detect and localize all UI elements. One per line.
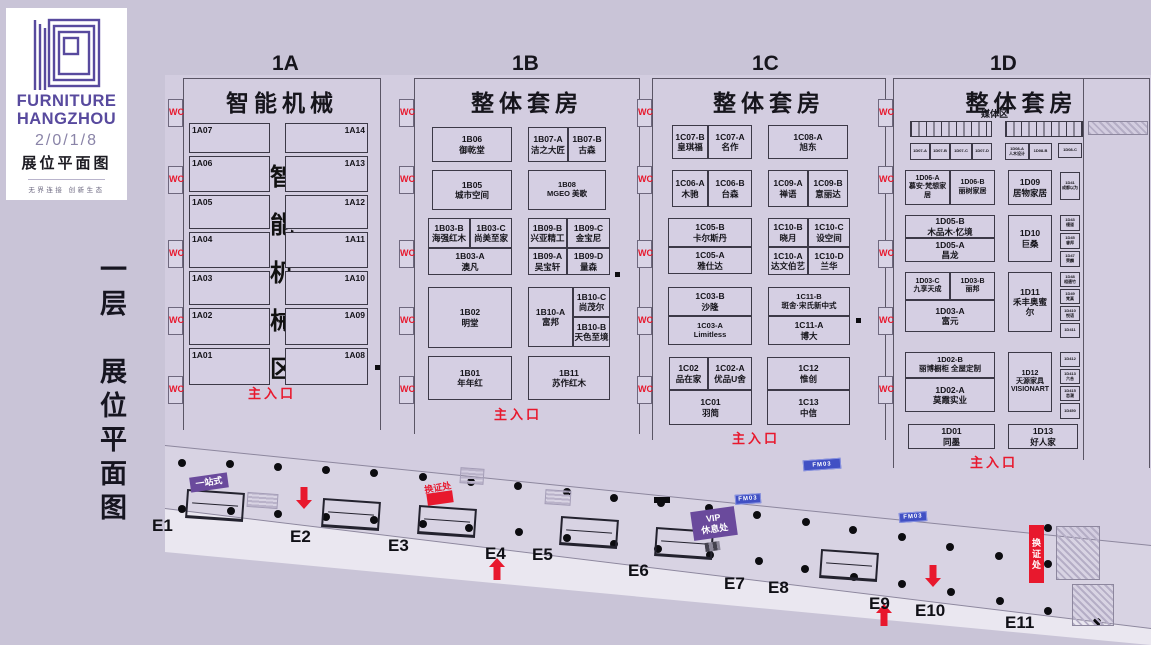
booth-1A03: 1A03 xyxy=(189,271,270,305)
booth-1D450: 1D450 xyxy=(1060,403,1080,419)
booth-1C10-B: 1C10-B晓月 xyxy=(768,218,808,247)
floor-plan-canvas: 1A智能机械主入口WCWCWCWCWC智能机械区1B整体套房主入口WCWCWCW… xyxy=(0,0,1151,645)
hall-sublabel-1D: 媒体区 xyxy=(981,107,1041,119)
booth-1D13: 1D13好人家 xyxy=(1008,424,1078,449)
entrance-turnstile xyxy=(417,505,477,538)
wc-label: WC xyxy=(879,384,893,394)
booth-1C11-B: 1C11-B斑舍·宋氏新中式 xyxy=(768,287,850,316)
gate-label-E11: E11 xyxy=(1005,613,1045,633)
hall-inner-wall xyxy=(1083,78,1084,460)
booth-1D411: 1D411 xyxy=(1060,323,1080,338)
wc-label: WC xyxy=(879,248,893,258)
booth-1C01: 1C01羽简 xyxy=(669,390,752,425)
booth-1C07-B: 1C07-B皇琪福 xyxy=(672,125,708,159)
booth-1B10-B: 1B10-B天色至境 xyxy=(573,317,610,347)
booth-1D415: 1D415恋潮 xyxy=(1060,386,1080,401)
booth-1B09-D: 1B09-D量森 xyxy=(567,248,610,275)
booth-1A11: 1A11 xyxy=(285,232,368,268)
service-badge: VIP休息处 xyxy=(690,506,738,541)
booth-1D413: 1D413六合 xyxy=(1060,369,1080,384)
wc-label: WC xyxy=(638,315,652,325)
wc-label: WC xyxy=(879,315,893,325)
booth-1D05-B: 1D05-B木品木·忆境 xyxy=(905,215,995,238)
fire-main-label: FM03 xyxy=(899,511,928,523)
gate-label-E10: E10 xyxy=(915,601,955,621)
booth-1B05: 1B05城市空间 xyxy=(432,170,512,210)
pillar-dot xyxy=(322,466,330,474)
logo-line2: HANGZHOU xyxy=(17,110,116,128)
hall-header-1B: 整体套房 xyxy=(414,84,640,110)
booth-1D02-B: 1D02-B丽博橱柜 全屋定制 xyxy=(905,352,995,378)
booth-1C07-A: 1C07-A名作 xyxy=(708,125,752,159)
wall-column-mark xyxy=(375,365,380,370)
booth-1A06: 1A06 xyxy=(189,156,270,192)
wc-label: WC xyxy=(879,107,893,117)
booth-1A02: 1A02 xyxy=(189,308,270,345)
booth-1D03-A: 1D03-A富元 xyxy=(905,300,995,332)
pillar-dot xyxy=(801,565,809,573)
booth-1A13: 1A13 xyxy=(285,156,368,192)
wc-label: WC xyxy=(169,174,183,184)
wc-label: WC xyxy=(400,248,414,258)
booth-1C05-B: 1C05-B卡尔斯丹 xyxy=(668,218,752,247)
booth-1C03-A: 1C03-ALimitless xyxy=(668,316,752,345)
wc-label: WC xyxy=(879,174,893,184)
booth-1C10-C: 1C10-C设空间 xyxy=(808,218,850,247)
wall-column-mark xyxy=(615,272,620,277)
hall-title-1C: 1C xyxy=(752,52,792,76)
booth-1D02-A: 1D02-A莫霞实业 xyxy=(905,378,995,412)
booth-1D48: 1D48相遇竹 xyxy=(1060,272,1080,287)
gate-label-E6: E6 xyxy=(628,561,668,581)
booth-1B06: 1B06御乾堂 xyxy=(432,127,512,162)
booth-1B08: 1B08MGEO 美歌 xyxy=(528,170,606,210)
pillar-dot xyxy=(753,511,761,519)
pillar-dot xyxy=(370,469,378,477)
booth-1B03-A: 1B03-A澳凡 xyxy=(428,248,512,275)
booth-1A08: 1A08 xyxy=(285,348,368,385)
hall-header-1C: 整体套房 xyxy=(652,84,886,110)
logo-subtitle: 展位平面图 xyxy=(21,152,111,173)
wc-label: WC xyxy=(638,107,652,117)
main-entrance-label-1B: 主入口 xyxy=(494,404,564,420)
booth-1D47: 1D47荣麟 xyxy=(1060,251,1080,267)
booth-1B09-A: 1B09-A吴宝轩 xyxy=(528,248,567,275)
booth-1D10: 1D10巨桑 xyxy=(1008,215,1052,262)
booth-1A10: 1A10 xyxy=(285,271,368,305)
booth-1D01: 1D01同墨 xyxy=(908,424,995,449)
gate-label-E5: E5 xyxy=(532,545,572,565)
booth-1D03-C: 1D03-C九享天成 xyxy=(905,272,950,300)
logo-tagline: 无界连接 创新生态 xyxy=(28,179,104,194)
booth-1C06-B: 1C06-B台森 xyxy=(708,170,752,207)
logo-line1: FURNITURE xyxy=(17,92,117,110)
booth-1B09-C: 1B09-C金宝尼 xyxy=(567,218,610,248)
main-entrance-label-1A: 主入口 xyxy=(248,383,318,399)
hall-title-1D: 1D xyxy=(990,52,1030,76)
pillar-dot xyxy=(1044,607,1052,615)
booth-1B09-B: 1B09-B兴亚精工 xyxy=(528,218,567,248)
escalator-structure xyxy=(1072,584,1114,626)
booth-1D45: 1D45睿邦 xyxy=(1060,233,1080,249)
hall-header-1A: 智能机械 xyxy=(183,84,381,110)
pillar-dot xyxy=(849,526,857,534)
booth-1C12: 1C12惟创 xyxy=(767,357,850,390)
booth-1C02: 1C02品在家 xyxy=(669,357,708,390)
wc-label: WC xyxy=(400,107,414,117)
gate-label-E2: E2 xyxy=(290,527,330,547)
bench-structure xyxy=(459,467,484,485)
entrance-turnstile xyxy=(819,549,879,582)
pillar-dot xyxy=(419,473,427,481)
booth-1D07-C: 1D07-C xyxy=(950,143,972,160)
booth-1B07-B: 1B07-B古森 xyxy=(568,127,606,162)
booth-1D08-A: 1D08-A人木设计 xyxy=(1005,143,1029,160)
hall-title-1B: 1B xyxy=(512,52,552,76)
pillar-dot xyxy=(274,463,282,471)
hall-title-1A: 1A xyxy=(272,52,312,76)
booth-1A14: 1A14 xyxy=(285,123,368,153)
booth-1C03-B: 1C03-B沙隆 xyxy=(668,287,752,316)
booth-1B02: 1B02明堂 xyxy=(428,287,512,348)
booth-1A12: 1A12 xyxy=(285,195,368,229)
bench-structure xyxy=(545,489,572,506)
booth-1A07: 1A07 xyxy=(189,123,270,153)
booth-1D07-B: 1D07-B xyxy=(930,143,950,160)
booth-1C11-A: 1C11-A博大 xyxy=(768,316,850,345)
booth-1D08-C: 1D08-C xyxy=(1058,143,1082,158)
booth-1B03-B: 1B03-B海强红木 xyxy=(428,218,470,248)
pillar-dot xyxy=(996,597,1004,605)
booth-1D12: 1D12天源家具 VISIONART xyxy=(1008,352,1052,412)
booth-1B10-A: 1B10-A富邦 xyxy=(528,287,573,347)
wc-label: WC xyxy=(400,315,414,325)
booth-1A01: 1A01 xyxy=(189,348,270,385)
booth-1C10-A: 1C10-A达文伯艺 xyxy=(768,247,808,275)
badge-recheck-vertical: 换证处 xyxy=(1029,525,1044,583)
booth-1B11: 1B11苏作红木 xyxy=(528,356,610,400)
booth-1D05-A: 1D05-A昌龙 xyxy=(905,238,995,262)
pillar-dot xyxy=(1044,524,1052,532)
booth-1C02-A: 1C02-A优品U舍 xyxy=(708,357,752,390)
booth-1D06-A: 1D06-A慕安·梵想家居 xyxy=(905,170,950,205)
pillar-dot xyxy=(514,482,522,490)
booth-1D410: 1D410悦语 xyxy=(1060,306,1080,321)
booth-1B07-A: 1B07-A洁之大匠 xyxy=(528,127,568,162)
booth-1D412: 1D412 xyxy=(1060,352,1080,367)
pillar-dot xyxy=(755,557,763,565)
booth-1D08-B: 1D08-B xyxy=(1029,143,1052,160)
booth-1D07-D: 1D07-D xyxy=(972,143,992,160)
wc-label: WC xyxy=(169,107,183,117)
media-area-stalls xyxy=(1005,121,1083,137)
booth-1B03-C: 1B03-C尚美至家 xyxy=(470,218,512,248)
entrance-turnstile xyxy=(185,489,245,522)
gate-label-E7: E7 xyxy=(724,574,764,594)
wall-column-mark xyxy=(856,318,861,323)
booth-1D41: 1D41成都以为 xyxy=(1060,172,1080,200)
pillar-dot xyxy=(226,460,234,468)
booth-1C09-A: 1C09-A禅语 xyxy=(768,170,808,207)
booth-1D11: 1D11禾丰奥蜜尔 xyxy=(1008,272,1052,332)
event-logo-card: FURNITURE HANGZHOU 2/0/1/8 展位平面图 无界连接 创新… xyxy=(6,8,127,200)
pillar-dot xyxy=(274,510,282,518)
wc-label: WC xyxy=(169,315,183,325)
down-arrow xyxy=(925,565,941,587)
escalator-structure xyxy=(1056,526,1100,580)
booth-1C10-D: 1C10-D兰华 xyxy=(808,247,850,275)
down-arrow xyxy=(296,487,312,509)
fire-main-label: FM03 xyxy=(735,493,762,505)
booth-1D43: 1D43缦道 xyxy=(1060,215,1080,231)
pillar-dot xyxy=(898,580,906,588)
wc-label: WC xyxy=(400,174,414,184)
gate-label-E1: E1 xyxy=(152,516,192,536)
pillar-dot xyxy=(995,552,1003,560)
wc-label: WC xyxy=(638,384,652,394)
wc-label: WC xyxy=(638,174,652,184)
pillar-dot xyxy=(515,528,523,536)
main-entrance-label-1D: 主入口 xyxy=(970,452,1040,468)
gate-label-E3: E3 xyxy=(388,536,428,556)
booth-1A05: 1A05 xyxy=(189,195,270,229)
booth-1D06-B: 1D06-B丽树家居 xyxy=(950,170,995,205)
booth-1D07-A: 1D07-A xyxy=(910,143,930,160)
page-title-vertical: 一层 展位平面图 xyxy=(92,255,131,527)
booth-1A09: 1A09 xyxy=(285,308,368,345)
booth-1D49: 1D49梵真 xyxy=(1060,289,1080,304)
pillar-dot xyxy=(946,543,954,551)
booth-1D09: 1D09居物家居 xyxy=(1008,170,1052,205)
booth-1B01: 1B01年年红 xyxy=(428,356,512,400)
pillar-dot xyxy=(178,459,186,467)
wc-label: WC xyxy=(169,384,183,394)
booth-1B10-C: 1B10-C尚茂尔 xyxy=(573,287,610,317)
entrance-turnstile xyxy=(321,498,381,531)
gate-label-E8: E8 xyxy=(768,578,808,598)
booth-1C06-A: 1C06-A木驰 xyxy=(672,170,708,207)
gate-label-E9: E9 xyxy=(869,594,909,614)
wc-label: WC xyxy=(169,248,183,258)
booth-1D03-B: 1D03-B丽邦 xyxy=(950,272,995,300)
escalator-structure xyxy=(1088,121,1148,135)
wc-label: WC xyxy=(638,248,652,258)
booth-1C09-B: 1C09-B意丽达 xyxy=(808,170,848,207)
pillar-dot xyxy=(947,588,955,596)
gate-label-E4: E4 xyxy=(485,544,525,564)
logo-mark xyxy=(32,18,102,92)
info-bar xyxy=(654,497,670,503)
booth-1C05-A: 1C05-A雅仕达 xyxy=(668,247,752,274)
pillar-dot xyxy=(1044,560,1052,568)
booth-1C13: 1C13中信 xyxy=(767,390,850,425)
logo-year: 2/0/1/8 xyxy=(35,132,98,150)
booth-1C08-A: 1C08-A旭东 xyxy=(768,125,848,159)
pillar-dot xyxy=(802,518,810,526)
booth-1A04: 1A04 xyxy=(189,232,270,268)
media-area-stalls xyxy=(910,121,992,137)
bench-structure xyxy=(247,492,279,509)
pillar-dot xyxy=(610,494,618,502)
main-entrance-label-1C: 主入口 xyxy=(732,428,802,444)
pillar-dot xyxy=(898,533,906,541)
wc-label: WC xyxy=(400,384,414,394)
